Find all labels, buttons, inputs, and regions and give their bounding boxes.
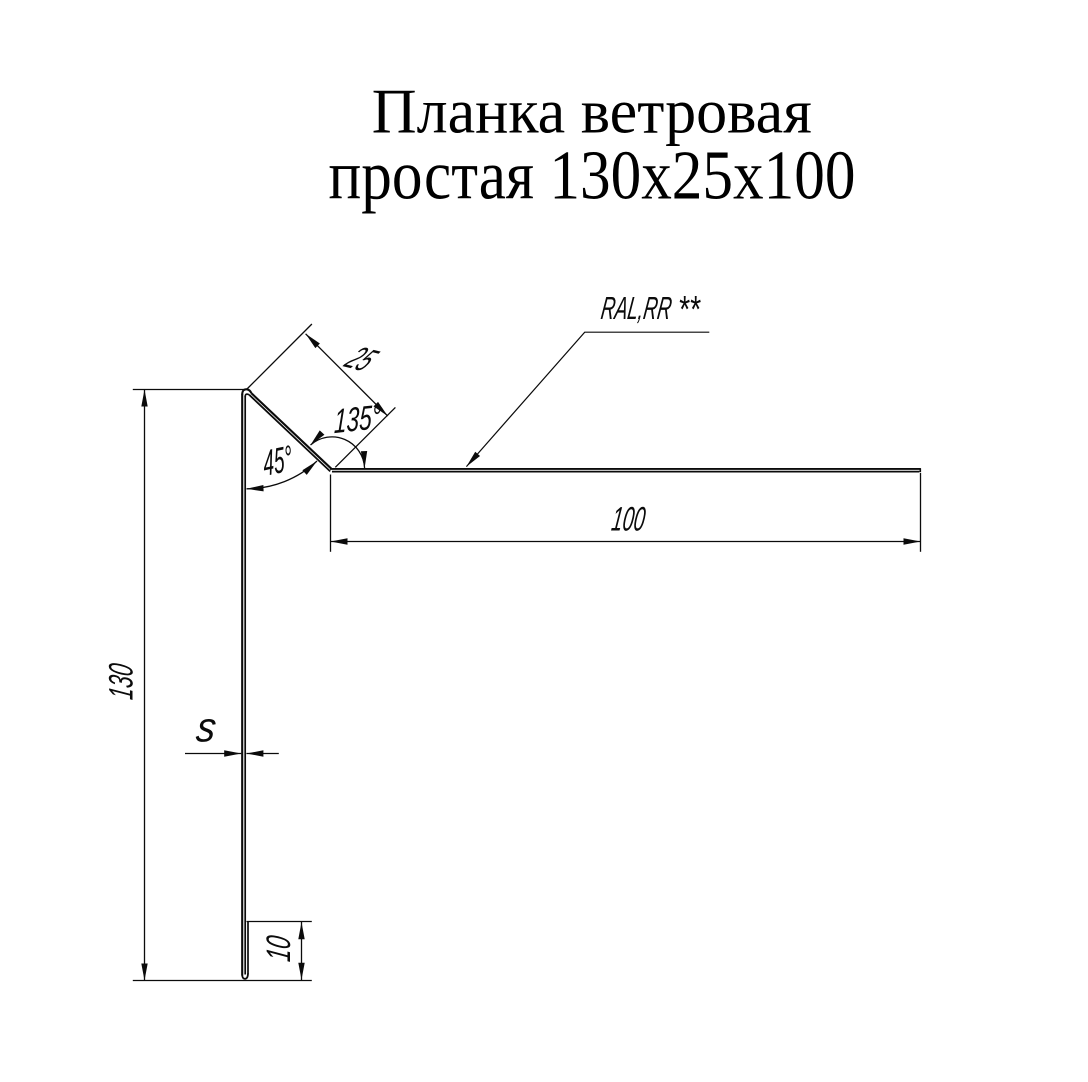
svg-text:45°: 45°: [262, 437, 293, 484]
svg-text:10: 10: [260, 933, 298, 963]
svg-text:RAL,RR: RAL,RR: [599, 290, 674, 326]
svg-text:135°: 135°: [333, 398, 381, 441]
svg-text:**: **: [678, 289, 701, 331]
svg-text:простая 130х25х100: простая 130х25х100: [329, 138, 856, 215]
svg-text:Планка ветровая: Планка ветровая: [372, 76, 812, 146]
svg-text:130: 130: [103, 661, 141, 701]
svg-text:100: 100: [609, 501, 647, 539]
